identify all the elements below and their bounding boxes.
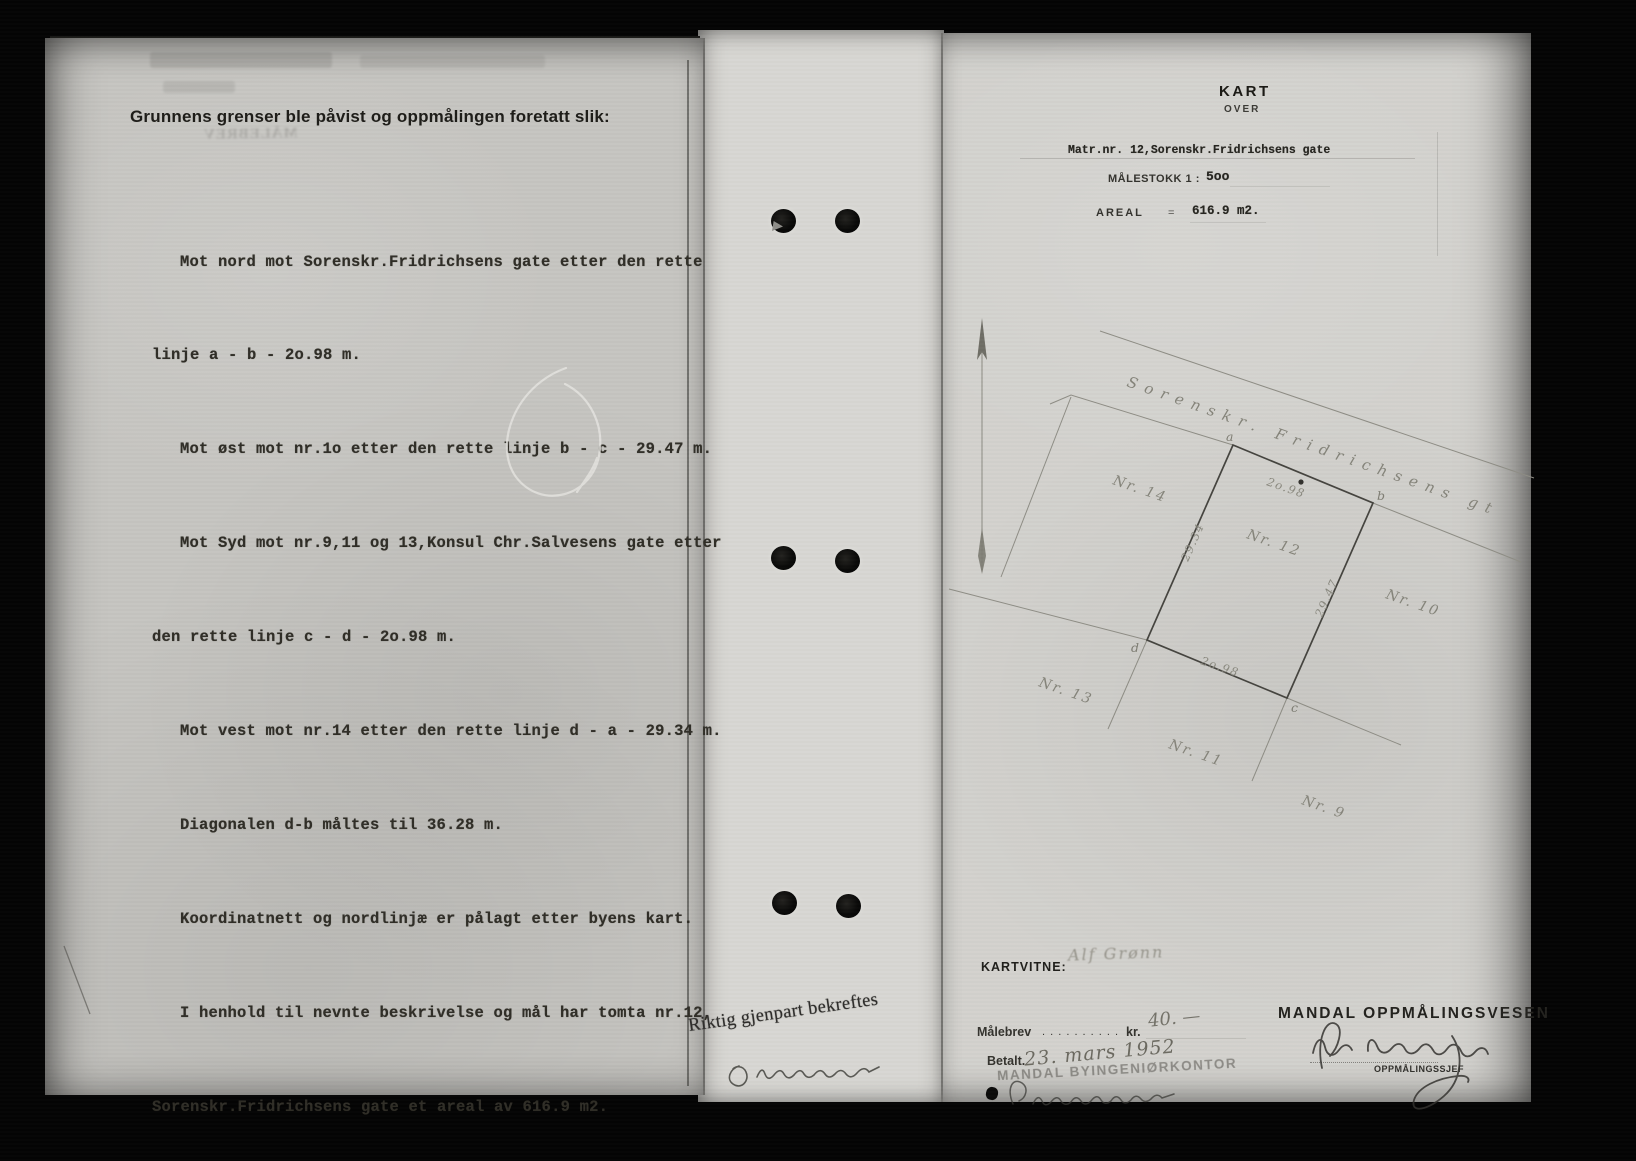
corner-label: d [1131, 640, 1139, 655]
map-boundary-lines [949, 331, 1534, 781]
org-signature [1313, 1023, 1488, 1109]
parcel-12-outline [1147, 445, 1373, 698]
measurement-label: 2o.98 [1198, 653, 1241, 680]
corner-label: a [1226, 429, 1233, 444]
plot-label: Nr. 10 [1383, 586, 1442, 620]
corner-label: c [1291, 700, 1298, 715]
corner-label: b [1377, 488, 1385, 503]
plot-label: Nr. 9 [1299, 792, 1348, 822]
plot-label: Nr. 14 [1110, 472, 1169, 506]
office-signature [1010, 1081, 1174, 1104]
certify-signature [729, 1066, 879, 1086]
plot-label: Nr. 13 [1036, 674, 1095, 708]
pencil-mark [64, 946, 90, 1014]
measurement-label: 2o.98 [1264, 474, 1307, 501]
measurement-label: 29.34 [1178, 521, 1208, 565]
measurement-label: 29.47 [1312, 577, 1342, 621]
survey-map: Sorenskr. Fridrichsens gt Nr. 14 Nr. 12 … [0, 0, 1636, 1161]
scanned-document: MÅLEBREV Grunnens grenser ble påvist og … [0, 0, 1636, 1161]
north-arrow-icon [977, 318, 987, 574]
plot-label: Nr. 11 [1166, 736, 1225, 770]
scratch-mark [507, 368, 600, 496]
plot-label: Nr. 12 [1244, 526, 1303, 560]
street-name-label: Sorenskr. Fridrichsens gt [1125, 373, 1502, 520]
